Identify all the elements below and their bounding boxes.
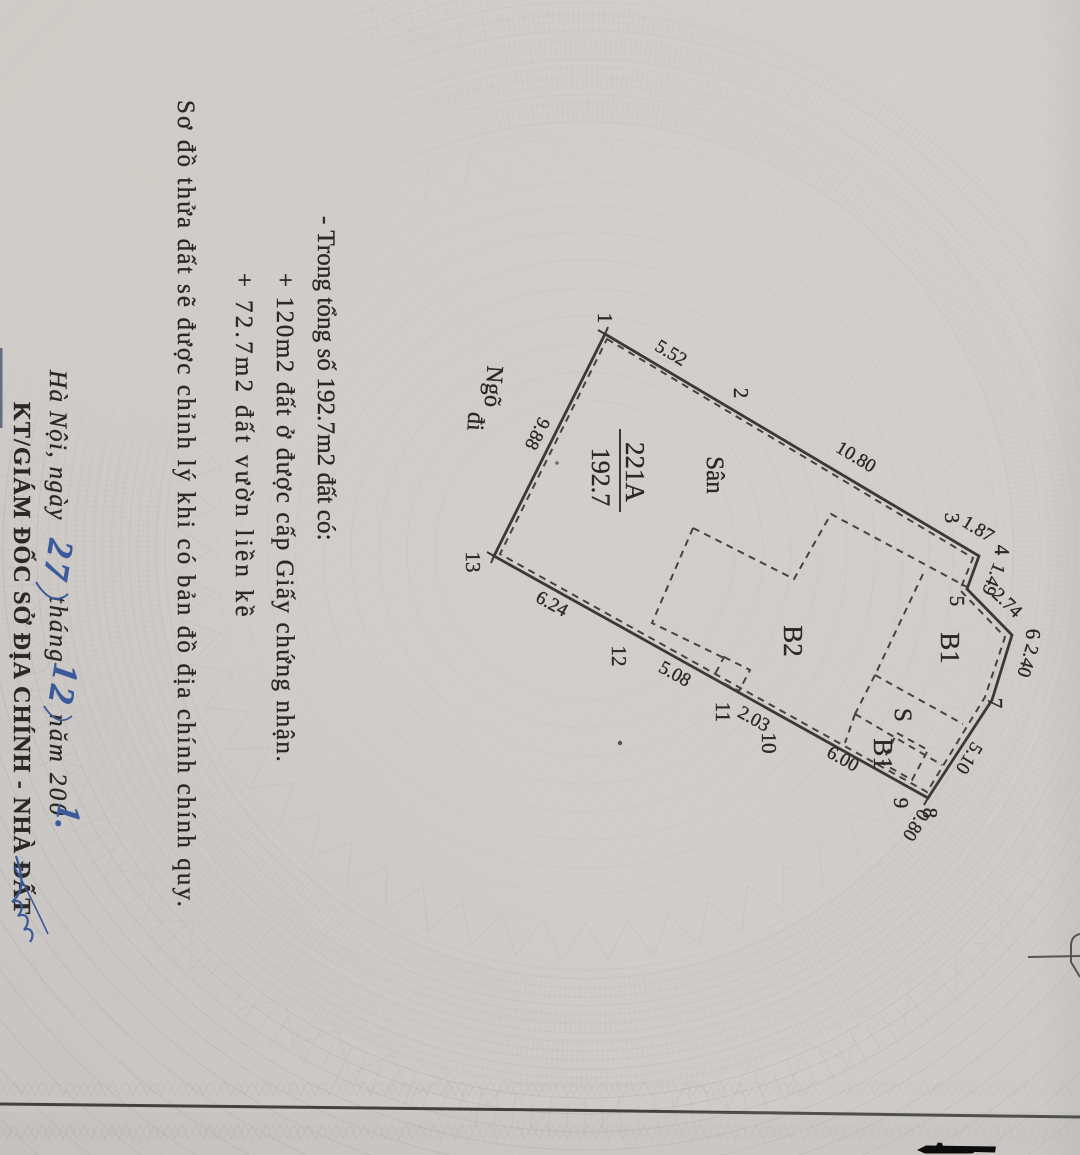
- svg-text:12: 12: [607, 646, 631, 667]
- svg-text:10: 10: [757, 733, 781, 754]
- svg-text:B1: B1: [935, 632, 965, 664]
- svg-text:S: S: [889, 708, 916, 722]
- svg-text:5: 5: [945, 596, 969, 607]
- svg-text:13: 13: [461, 552, 485, 573]
- svg-text:4: 4: [990, 545, 1014, 556]
- svg-text:Sơ đồ thửa đất sẽ được chỉnh l: Sơ đồ thửa đất sẽ được chỉnh lý khi có b…: [172, 100, 199, 909]
- svg-text:11: 11: [711, 702, 735, 722]
- svg-text:B1: B1: [868, 738, 898, 770]
- svg-text:192.7: 192.7: [586, 448, 615, 507]
- svg-text:27: 27: [35, 536, 82, 587]
- svg-text:2: 2: [729, 388, 753, 399]
- svg-text:B2: B2: [778, 625, 808, 657]
- svg-text:+ 72.7m2 đất vườn liền kề: + 72.7m2 đất vườn liền kề: [230, 273, 257, 620]
- svg-text:6: 6: [1021, 629, 1045, 640]
- svg-text:Ngõ: Ngõ: [479, 365, 508, 408]
- svg-text:- Trong tổng số 192.7m2 đất có: - Trong tổng số 192.7m2 đất có:: [312, 216, 339, 541]
- svg-text:221A: 221A: [620, 442, 650, 503]
- svg-text:KT/GIÁM ĐỐC SỞ ĐỊA CHÍNH - NHÀ: KT/GIÁM ĐỐC SỞ ĐỊA CHÍNH - NHÀ ĐẤT: [8, 402, 35, 916]
- svg-text:1.: 1.: [47, 802, 87, 832]
- svg-text:12: 12: [40, 661, 86, 711]
- svg-text:1: 1: [593, 313, 617, 324]
- svg-text:7: 7: [983, 698, 1007, 709]
- svg-text:tháng: tháng: [44, 596, 71, 664]
- svg-text:Sân: Sân: [701, 456, 728, 494]
- svg-text:đi: đi: [461, 411, 488, 432]
- svg-text:Hà Nội, ngày: Hà Nội, ngày: [44, 369, 71, 521]
- svg-text:3: 3: [940, 513, 964, 524]
- svg-text:9: 9: [889, 798, 913, 809]
- svg-text:+ 120m2 đất ở được cấp Giấy ch: + 120m2 đất ở được cấp Giấy chứng nhận.: [271, 273, 298, 763]
